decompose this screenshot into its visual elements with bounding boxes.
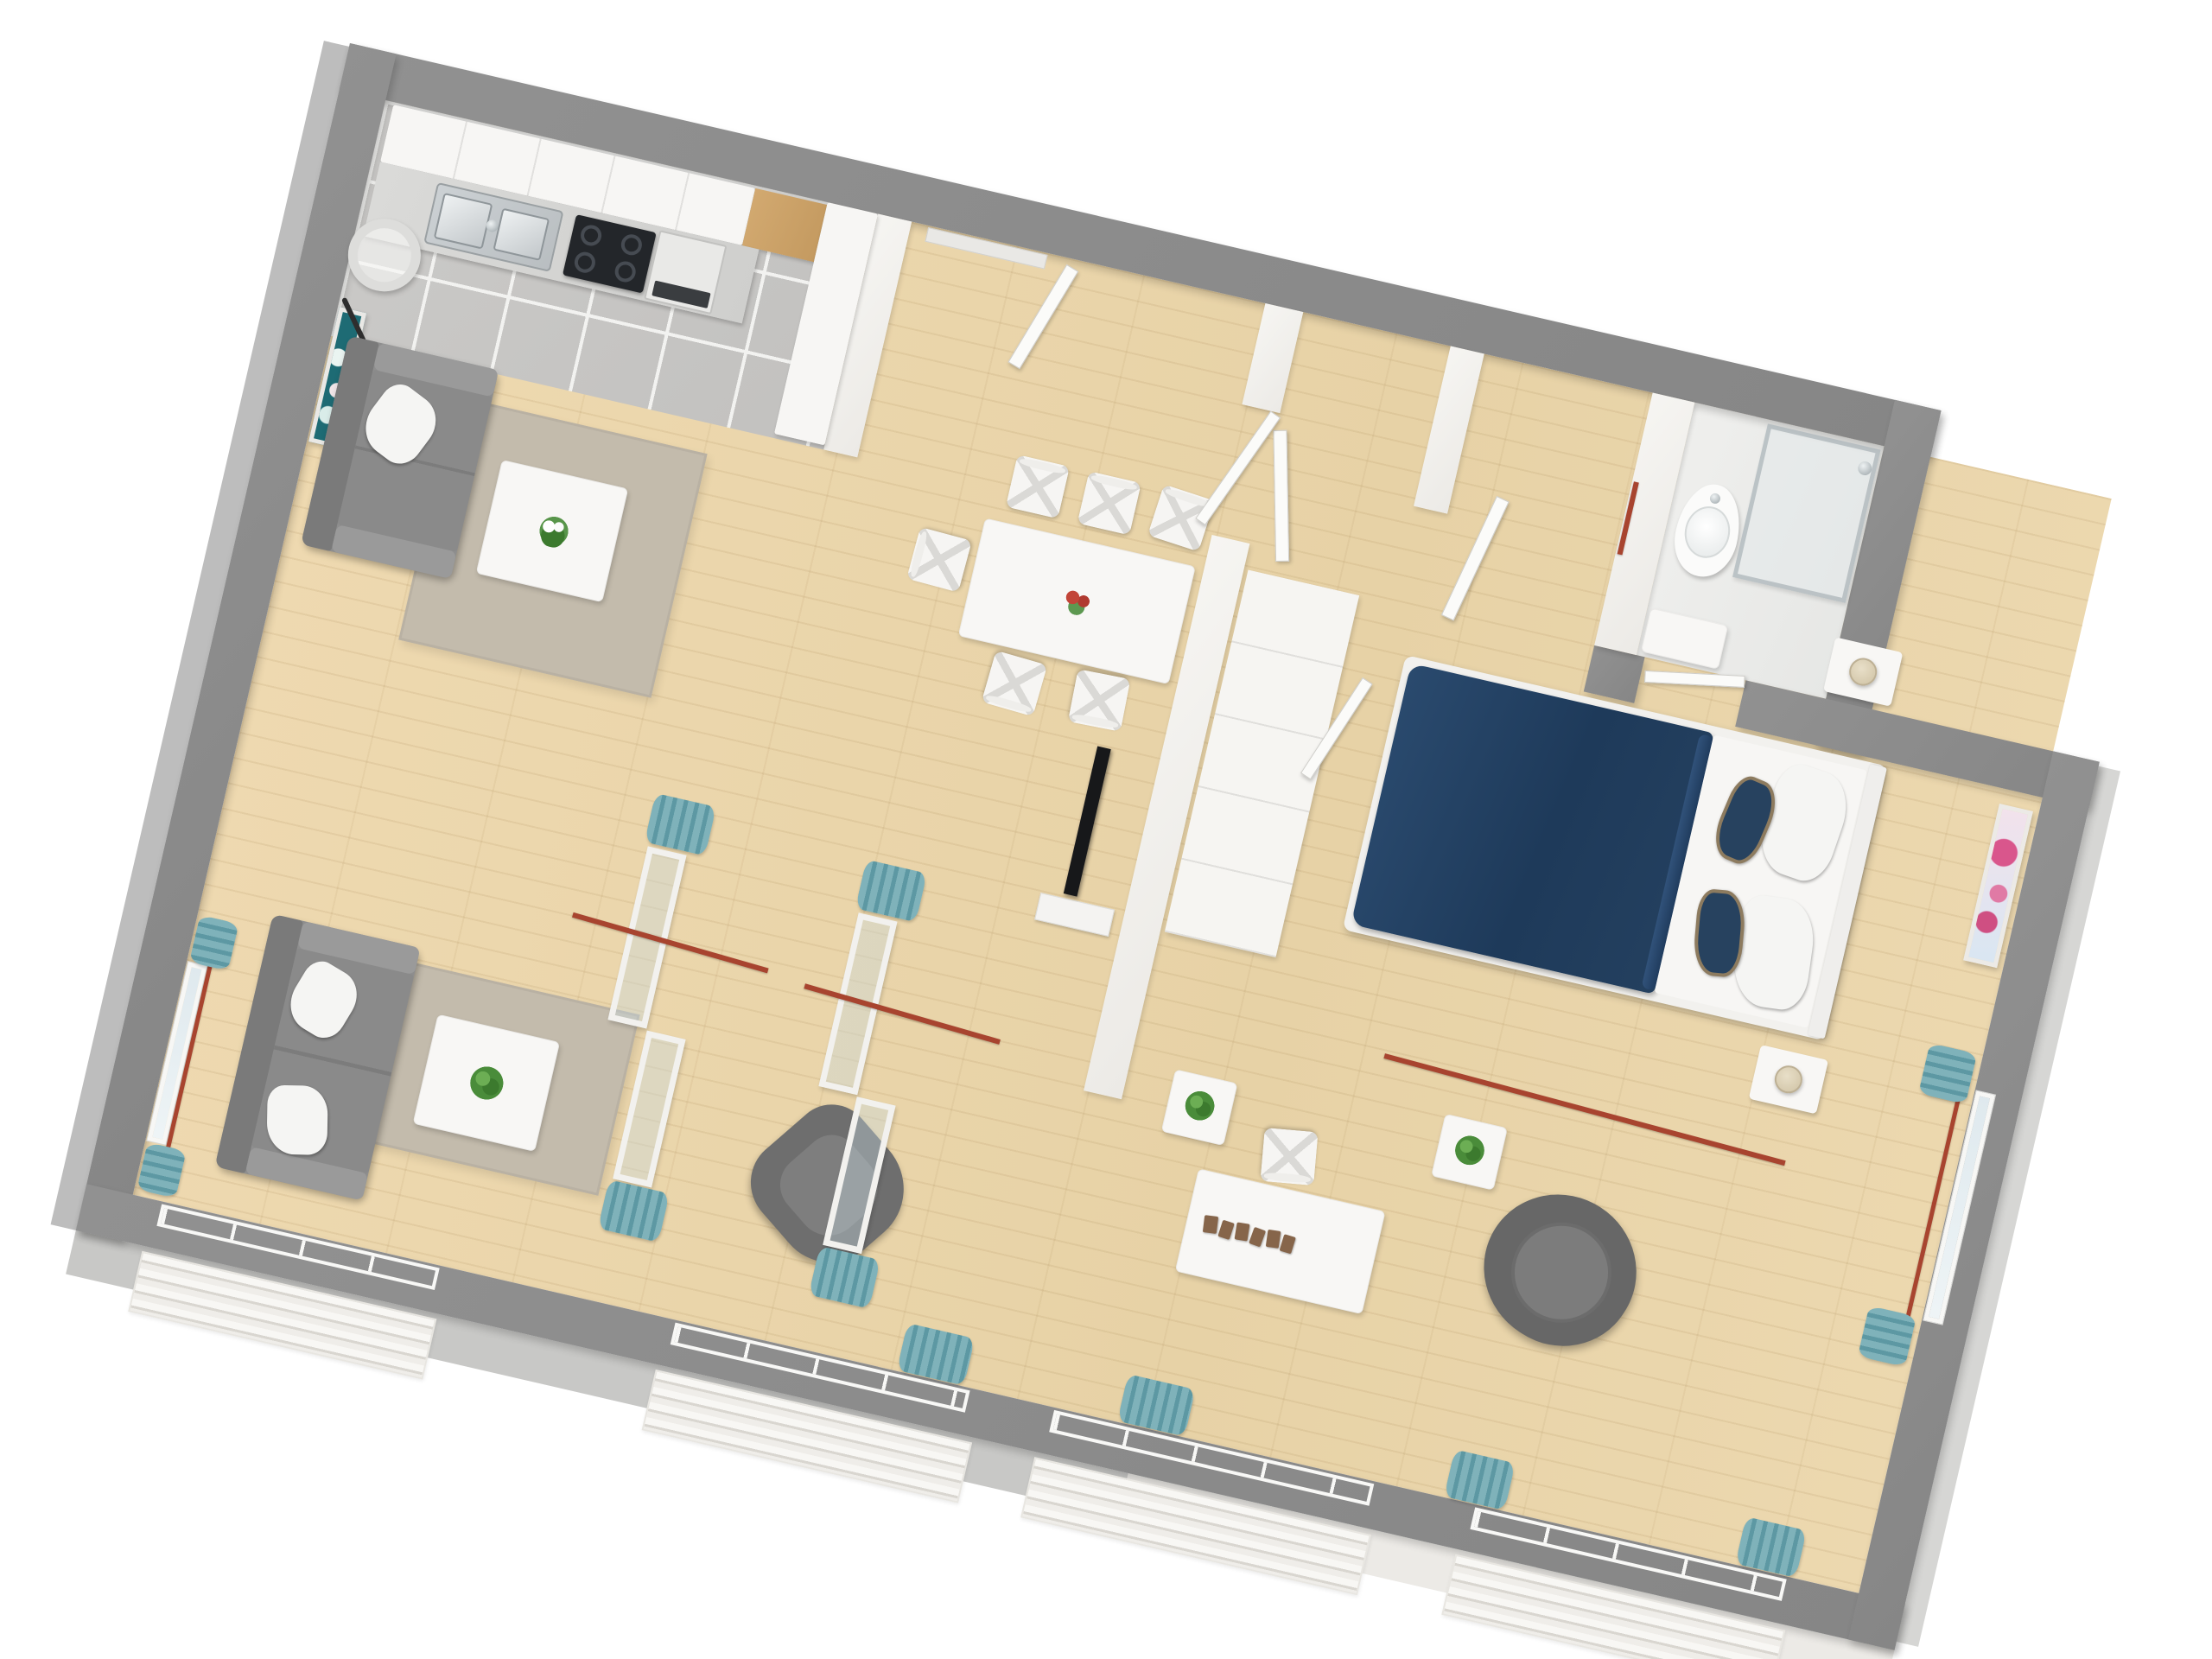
nightstand-north-lamp [1847,655,1879,688]
office-chair [1260,1128,1318,1185]
burner-2 [619,232,644,257]
coffee-table-flowers [531,511,576,551]
bathroom-sink-tap [1709,493,1721,505]
bathroom-sink-bowl [1680,502,1735,563]
desk-letter-1 [1203,1215,1218,1234]
sitting-sofa-pillow-2 [266,1085,327,1155]
dining-chair-5 [1068,669,1131,732]
apartment-3d-floorplan [76,43,2169,1650]
burner-1 [579,223,604,248]
bedroom-side-table-plant [1449,1131,1490,1169]
desk-letter-4 [1249,1227,1266,1248]
desk-letter-2 [1217,1220,1234,1240]
burner-3 [573,250,598,275]
desk-letter-6 [1280,1234,1296,1254]
floorplan-render-canvas [0,0,2212,1659]
dining-flowers [1056,583,1099,619]
sitting-table-plant [463,1062,510,1104]
desk-letter-3 [1235,1222,1250,1241]
bedroom-round-chair-seat [1492,1204,1630,1342]
sink-basin-right [493,208,550,261]
sink-basin-left [434,193,493,250]
desk-letter-5 [1266,1230,1281,1249]
nightstand-south-lamp [1772,1063,1805,1096]
office-side-table-plant [1179,1087,1220,1125]
shower-head [1857,460,1873,476]
vestibule-door-1 [1273,430,1289,562]
burner-4 [613,259,638,284]
